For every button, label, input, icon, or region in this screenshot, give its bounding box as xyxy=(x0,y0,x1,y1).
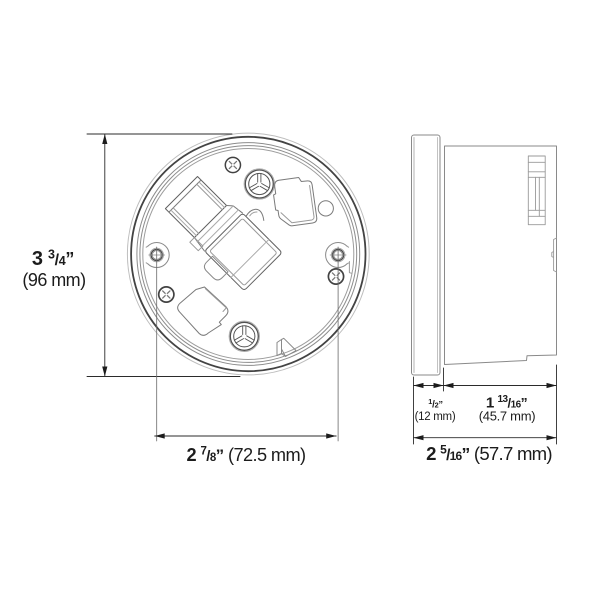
svg-text:(96 mm): (96 mm) xyxy=(22,270,85,290)
svg-text:2 7/8” (72.5 mm): 2 7/8” (72.5 mm) xyxy=(187,445,306,465)
svg-text:3 3/4”: 3 3/4” xyxy=(32,248,74,271)
svg-text:(45.7 mm): (45.7 mm) xyxy=(479,409,536,424)
svg-text:1/2”: 1/2” xyxy=(428,397,443,411)
svg-text:(12 mm): (12 mm) xyxy=(415,411,456,423)
svg-text:2 5/16” (57.7 mm): 2 5/16” (57.7 mm) xyxy=(426,443,552,465)
